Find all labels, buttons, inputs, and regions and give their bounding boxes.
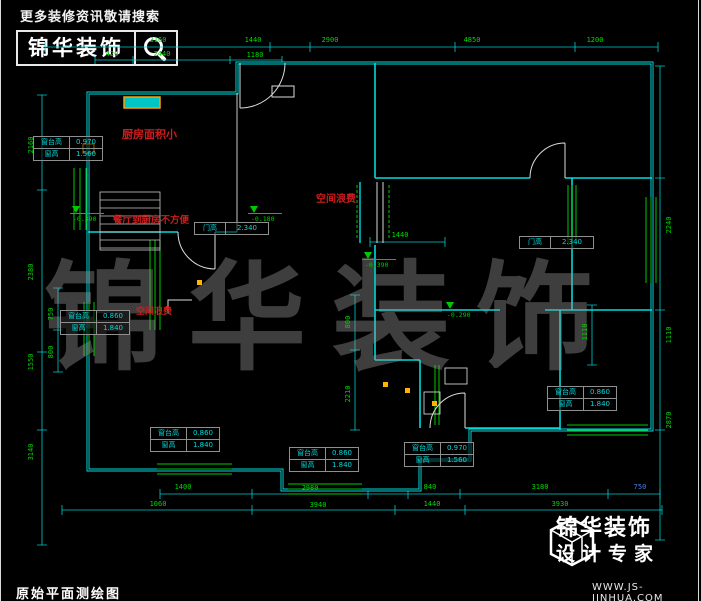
dimension-label: 1200 bbox=[587, 36, 604, 44]
dimension-label: 1110 bbox=[581, 324, 589, 341]
dimension-label: 3180 bbox=[532, 483, 549, 491]
red-annotation: 餐厅到厨房不方便 bbox=[113, 212, 189, 226]
dimension-label: 1110 bbox=[665, 327, 673, 344]
window-height-table: 窗台高0.860窗高1.840 bbox=[60, 310, 130, 335]
red-annotation: 厨房面积小 bbox=[122, 126, 177, 142]
dimension-label: 2210 bbox=[344, 386, 352, 403]
red-annotation: 空间浪费 bbox=[136, 304, 172, 317]
dimension-label: 750 bbox=[634, 483, 647, 491]
doors bbox=[168, 63, 565, 428]
dimension-label: 2980 bbox=[302, 484, 319, 492]
window-height-table: 窗台高0.860窗高1.840 bbox=[547, 386, 617, 411]
dimension-label: 2440 bbox=[154, 50, 171, 58]
footer-brand-block: 锦华装饰 设计专家 bbox=[548, 516, 660, 566]
cube-logo-icon bbox=[548, 516, 596, 568]
drawing-title: 原始平面测绘图 bbox=[16, 583, 127, 601]
switch-marker bbox=[383, 382, 388, 387]
dimension-label: 3160 bbox=[150, 36, 167, 44]
dimension-label: 2900 bbox=[322, 36, 339, 44]
footer-website: WWW.JS-JINHUA.COM bbox=[592, 582, 701, 601]
cad-screenshot: 更多装修资讯敬请搜索 锦华装饰 bbox=[0, 0, 701, 601]
floor-plan-drawing bbox=[0, 0, 701, 601]
switch-marker bbox=[197, 280, 202, 285]
dimension-label: 2870 bbox=[665, 412, 673, 429]
dimension-label: 3930 bbox=[552, 500, 569, 508]
elevation-triangle-icon bbox=[72, 206, 80, 213]
window-height-table: 窗台高0.860窗高1.840 bbox=[289, 447, 359, 472]
dimension-label: 1060 bbox=[150, 500, 167, 508]
dimension-label: 1400 bbox=[175, 483, 192, 491]
door-height-tag: 门高2.340 bbox=[519, 236, 594, 249]
window-height-table: 窗台高0.860窗高1.840 bbox=[150, 427, 220, 452]
dimension-label: 800 bbox=[47, 346, 55, 359]
switch-marker bbox=[405, 388, 410, 393]
elevation-triangle-icon bbox=[250, 206, 258, 213]
dimension-label: 2380 bbox=[27, 264, 35, 281]
dimension-label: 1440 bbox=[245, 36, 262, 44]
dimension-label: 1550 bbox=[27, 354, 35, 371]
dimension-label: 2240 bbox=[665, 217, 673, 234]
dimension-label: 3940 bbox=[310, 501, 327, 509]
dimension-label: 1440 bbox=[392, 231, 409, 239]
dimension-label: 750 bbox=[47, 308, 55, 321]
elevation-triangle-icon bbox=[446, 302, 454, 309]
dimension-label: 1440 bbox=[424, 500, 441, 508]
door-height-tag: 门高2.340 bbox=[194, 222, 269, 235]
dimension-label: 1180 bbox=[247, 51, 264, 59]
elevation-triangle-icon bbox=[364, 252, 372, 259]
dimension-label: 840 bbox=[424, 483, 437, 491]
switch-marker bbox=[432, 401, 437, 406]
dimension-label: 4850 bbox=[464, 36, 481, 44]
dimension-label: 800 bbox=[344, 316, 352, 329]
duct-shaft bbox=[357, 182, 389, 243]
dimension-label: 3140 bbox=[27, 444, 35, 461]
bathroom-fixtures bbox=[424, 368, 467, 414]
dimension-label: 420 bbox=[106, 50, 119, 58]
highlighted-window bbox=[124, 97, 160, 108]
window-height-table: 窗台高0.970窗高1.560 bbox=[404, 442, 474, 467]
window-height-table: 窗台高0.970窗高1.560 bbox=[33, 136, 103, 161]
red-annotation: 空间浪费 bbox=[316, 190, 356, 205]
